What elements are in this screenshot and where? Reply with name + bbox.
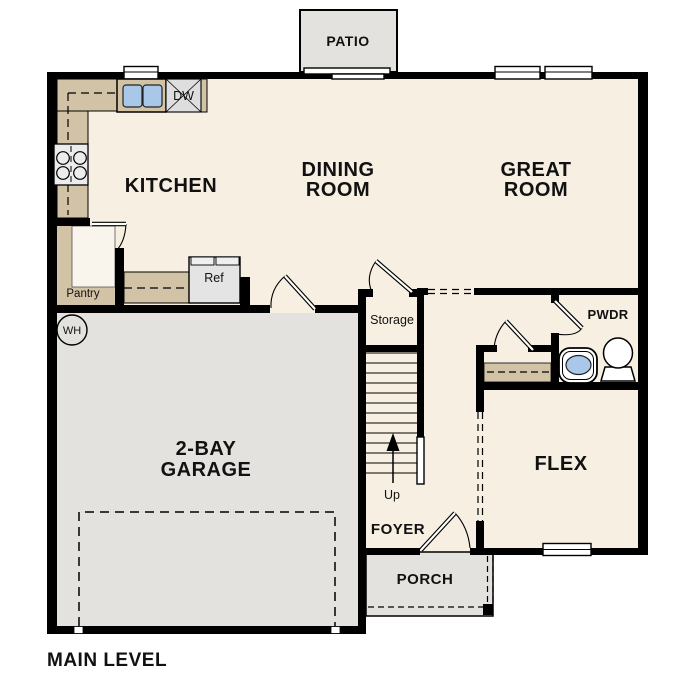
ref-label: Ref	[204, 271, 224, 285]
plan-title: MAIN LEVEL	[47, 650, 167, 671]
kitchen-label: KITCHEN	[125, 175, 217, 197]
patio-label: PATIO	[326, 33, 369, 49]
cased-opening-great-room	[428, 288, 474, 295]
kitchen-window	[124, 67, 158, 80]
great-room-label-line2: ROOM	[504, 179, 568, 201]
up-label: Up	[384, 488, 400, 502]
pwdr-sink	[559, 348, 597, 383]
foyer-closet	[484, 363, 551, 382]
stove	[54, 144, 88, 185]
pantry-floor	[72, 226, 115, 287]
foyer-label: FOYER	[371, 521, 425, 538]
kitchen-sink	[117, 79, 166, 112]
storage-label: Storage	[370, 313, 414, 327]
dining-room-label-line2: ROOM	[306, 179, 370, 201]
patio-slider-panel-1	[304, 68, 390, 74]
pantry-label: Pantry	[66, 288, 99, 300]
floor-plan: PATIO KITCHEN DINING ROOM GREAT ROOM 2-B…	[0, 0, 687, 687]
dw-label: DW	[173, 89, 194, 103]
garage-label-line2: GARAGE	[161, 459, 252, 481]
toilet	[601, 338, 635, 381]
stair-handrail	[417, 437, 424, 484]
garage-label-line1: 2-BAY	[176, 438, 237, 460]
patio-slider-panel-2	[332, 74, 384, 79]
great-room-window-1	[495, 67, 540, 80]
pwdr-label: PWDR	[588, 307, 629, 322]
great-room-window-2	[545, 67, 592, 80]
flex-label: FLEX	[534, 453, 587, 475]
floor-plan-canvas: PATIO KITCHEN DINING ROOM GREAT ROOM 2-B…	[0, 0, 687, 687]
porch-post	[483, 604, 493, 615]
porch-label: PORCH	[397, 571, 454, 588]
great-room-label-line1: GREAT	[500, 159, 571, 181]
dining-room-label-line1: DINING	[302, 159, 375, 181]
wh-label: WH	[63, 325, 81, 337]
